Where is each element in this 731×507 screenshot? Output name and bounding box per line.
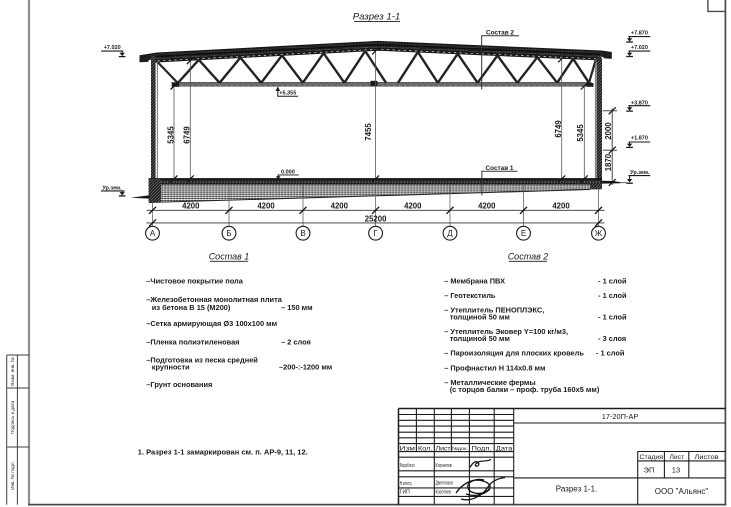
svg-text:–Чистовое покрытие пола: –Чистовое покрытие пола bbox=[146, 277, 243, 286]
svg-text:Корнилов: Корнилов bbox=[436, 463, 452, 469]
svg-text:- 1 слой: - 1 слой bbox=[598, 291, 627, 300]
svg-text:ЭП: ЭП bbox=[644, 465, 655, 474]
svg-text:Г: Г bbox=[373, 229, 378, 238]
svg-text:– 2 слоя: – 2 слоя bbox=[281, 338, 311, 347]
svg-text:Кол.: Кол. bbox=[418, 445, 433, 452]
svg-text:Лист: Лист bbox=[436, 445, 451, 452]
svg-text:крупности: крупности bbox=[152, 363, 190, 372]
svg-text:–Пленка полиэтиленовая: –Пленка полиэтиленовая bbox=[146, 338, 239, 347]
svg-text:- 1 слой: - 1 слой bbox=[598, 277, 627, 286]
svg-text:№док.: №док. bbox=[452, 446, 468, 452]
svg-text:2000: 2000 bbox=[604, 122, 613, 140]
svg-text:1. Разрез 1-1 замаркирован см.: 1. Разрез 1-1 замаркирован см. п. АР-9, … bbox=[138, 447, 308, 456]
svg-text:Разработал: Разработал bbox=[400, 463, 415, 469]
svg-text:+5.355: +5.355 bbox=[279, 91, 296, 97]
svg-text:ООО "Альянс": ООО "Альянс" bbox=[655, 487, 709, 496]
svg-text:–Грунт основания: –Грунт основания bbox=[146, 380, 212, 389]
svg-text:Состав 1: Состав 1 bbox=[209, 252, 250, 262]
svg-text:5345: 5345 bbox=[166, 126, 175, 144]
svg-text:7455: 7455 bbox=[364, 123, 373, 141]
svg-text:В: В bbox=[300, 229, 305, 238]
svg-text:Стадия: Стадия bbox=[640, 454, 664, 461]
svg-text:– Геотекстиль: – Геотекстиль bbox=[444, 291, 496, 300]
svg-text:Коротаев: Коротаев bbox=[436, 489, 452, 495]
svg-text:Ж: Ж bbox=[595, 229, 603, 238]
svg-text:– Пароизоляция для плоских кро: – Пароизоляция для плоских кровель bbox=[444, 349, 584, 358]
svg-text:Подпись и дата: Подпись и дата bbox=[10, 401, 15, 434]
svg-text:1870: 1870 bbox=[604, 153, 613, 171]
svg-text:Разрез 1-1.: Разрез 1-1. bbox=[556, 485, 598, 494]
svg-text:+7.870: +7.870 bbox=[631, 30, 648, 36]
svg-text:Лист: Лист bbox=[670, 454, 685, 461]
svg-text:–200-:-1200 мм: –200-:-1200 мм bbox=[279, 363, 332, 372]
svg-text:+7.020: +7.020 bbox=[631, 45, 648, 51]
svg-text:(с торцов балки – проф. труба: (с торцов балки – проф. труба 160x5 мм) bbox=[450, 385, 600, 394]
svg-text:5345: 5345 bbox=[576, 124, 585, 142]
svg-text:Инв. № подл.: Инв. № подл. bbox=[10, 461, 15, 490]
svg-text:+7.020: +7.020 bbox=[104, 45, 121, 51]
svg-text:4200: 4200 bbox=[331, 202, 349, 211]
svg-text:Листов: Листов bbox=[695, 454, 720, 461]
svg-text:13: 13 bbox=[672, 465, 680, 474]
svg-text:4200: 4200 bbox=[478, 202, 496, 211]
svg-text:4200: 4200 bbox=[404, 202, 422, 211]
svg-text:+1.870: +1.870 bbox=[631, 136, 648, 142]
svg-text:4200: 4200 bbox=[182, 202, 200, 211]
svg-text:25200: 25200 bbox=[365, 214, 387, 223]
svg-text:Н.контр.: Н.контр. bbox=[400, 481, 413, 487]
svg-text:6749: 6749 bbox=[183, 126, 192, 144]
svg-text:Д: Д bbox=[447, 229, 453, 238]
svg-text:Ур.зем.: Ур.зем. bbox=[630, 170, 650, 176]
svg-text:– Мембрана ПВХ: – Мембрана ПВХ bbox=[444, 277, 505, 286]
svg-text:4200: 4200 bbox=[552, 202, 570, 211]
svg-text:толщиной 50 мм: толщиной 50 мм bbox=[450, 334, 510, 343]
svg-text:17-20П-АР: 17-20П-АР bbox=[602, 412, 639, 421]
svg-text:Изм: Изм bbox=[400, 445, 416, 452]
svg-text:А: А bbox=[150, 229, 156, 238]
svg-text:Двоеглазов: Двоеглазов bbox=[436, 481, 454, 487]
svg-text:Дата: Дата bbox=[496, 445, 513, 452]
svg-text:- 1 слой: - 1 слой bbox=[596, 349, 625, 358]
svg-text:– Профнастил Н 114x0.8 мм: – Профнастил Н 114x0.8 мм bbox=[444, 363, 545, 372]
svg-text:Е: Е bbox=[521, 229, 526, 238]
svg-text:Подп.: Подп. bbox=[472, 445, 492, 452]
svg-text:Взам. инв. №: Взам. инв. № bbox=[10, 357, 15, 386]
svg-text:Состав 2: Состав 2 bbox=[508, 252, 549, 262]
svg-text:толщиной 50 мм: толщиной 50 мм bbox=[450, 313, 510, 322]
svg-text:- 1 слой: - 1 слой bbox=[598, 313, 627, 322]
svg-text:Б: Б bbox=[226, 229, 231, 238]
svg-text:из бетона В 15 (М200): из бетона В 15 (М200) bbox=[152, 303, 231, 312]
svg-text:–Сетка армирующая Ø3 100x100 м: –Сетка армирующая Ø3 100x100 мм bbox=[146, 319, 277, 328]
svg-text:– 150 мм: – 150 мм bbox=[281, 303, 312, 312]
svg-text:6749: 6749 bbox=[554, 120, 563, 138]
svg-text:- 3 слоя: - 3 слоя bbox=[598, 334, 626, 343]
svg-text:4200: 4200 bbox=[257, 202, 275, 211]
svg-text:ГИП: ГИП bbox=[400, 490, 410, 496]
